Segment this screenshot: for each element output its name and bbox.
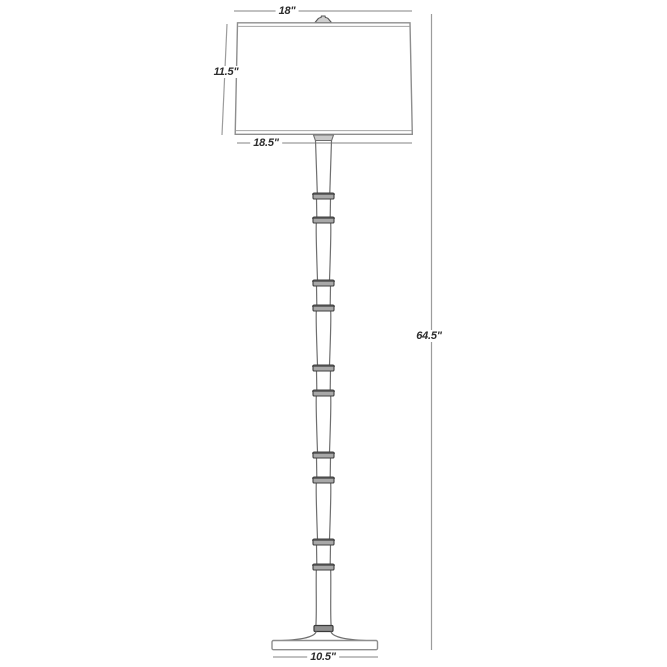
stem-node bbox=[312, 365, 335, 371]
lamp-line-art bbox=[0, 0, 667, 667]
stem-node bbox=[312, 280, 335, 286]
dimension-diagram: 18" 11.5" 18.5" 64.5" 10.5" bbox=[0, 0, 667, 667]
stem-node bbox=[312, 539, 335, 545]
shade-outline bbox=[235, 23, 412, 135]
lamp-stem bbox=[316, 141, 332, 626]
dim-label-base-width: 10.5" bbox=[307, 651, 339, 663]
dim-line-shade-height bbox=[222, 24, 227, 135]
base-flare bbox=[281, 632, 367, 641]
stem-node bbox=[312, 193, 335, 199]
stem-node bbox=[312, 305, 335, 311]
stem-node bbox=[312, 564, 335, 570]
lamp-base bbox=[272, 626, 378, 650]
stem-node bbox=[312, 477, 335, 483]
stem-node bbox=[312, 217, 335, 223]
dim-label-shade-bottom-width: 18.5" bbox=[250, 137, 282, 149]
base-collar bbox=[314, 626, 333, 632]
stem-nodes bbox=[312, 193, 335, 570]
neck-collar bbox=[314, 135, 334, 141]
finial bbox=[315, 16, 331, 23]
base-plinth bbox=[272, 641, 378, 650]
stem-node bbox=[312, 452, 335, 458]
dim-label-shade-height: 11.5" bbox=[211, 66, 242, 78]
lamp-shade bbox=[235, 23, 412, 135]
dim-label-overall-height: 64.5" bbox=[413, 330, 445, 342]
dim-label-shade-top-width: 18" bbox=[276, 5, 299, 17]
stem-node bbox=[312, 390, 335, 396]
